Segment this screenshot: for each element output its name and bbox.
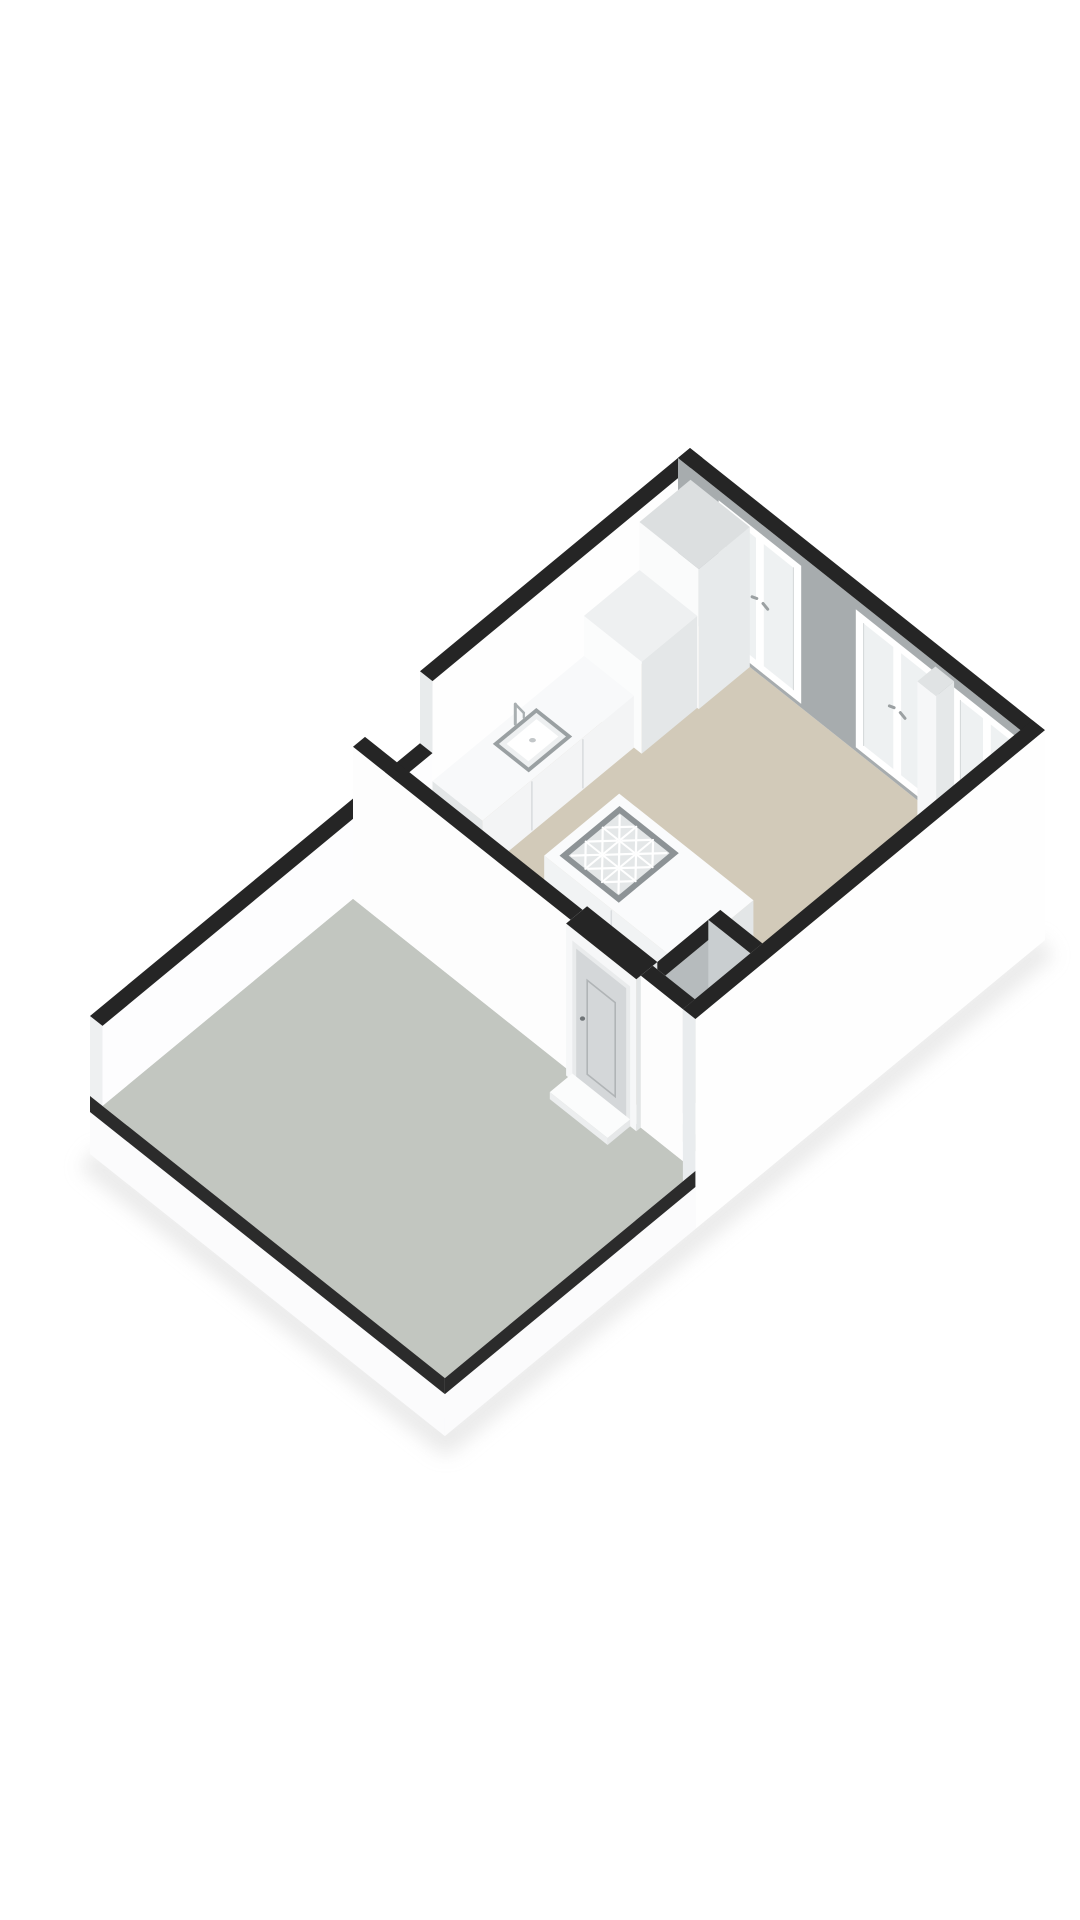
floorplan-page: [0, 0, 1080, 1920]
floorplan-3d: [0, 0, 1080, 1920]
scene-root: [88, 448, 1046, 1441]
